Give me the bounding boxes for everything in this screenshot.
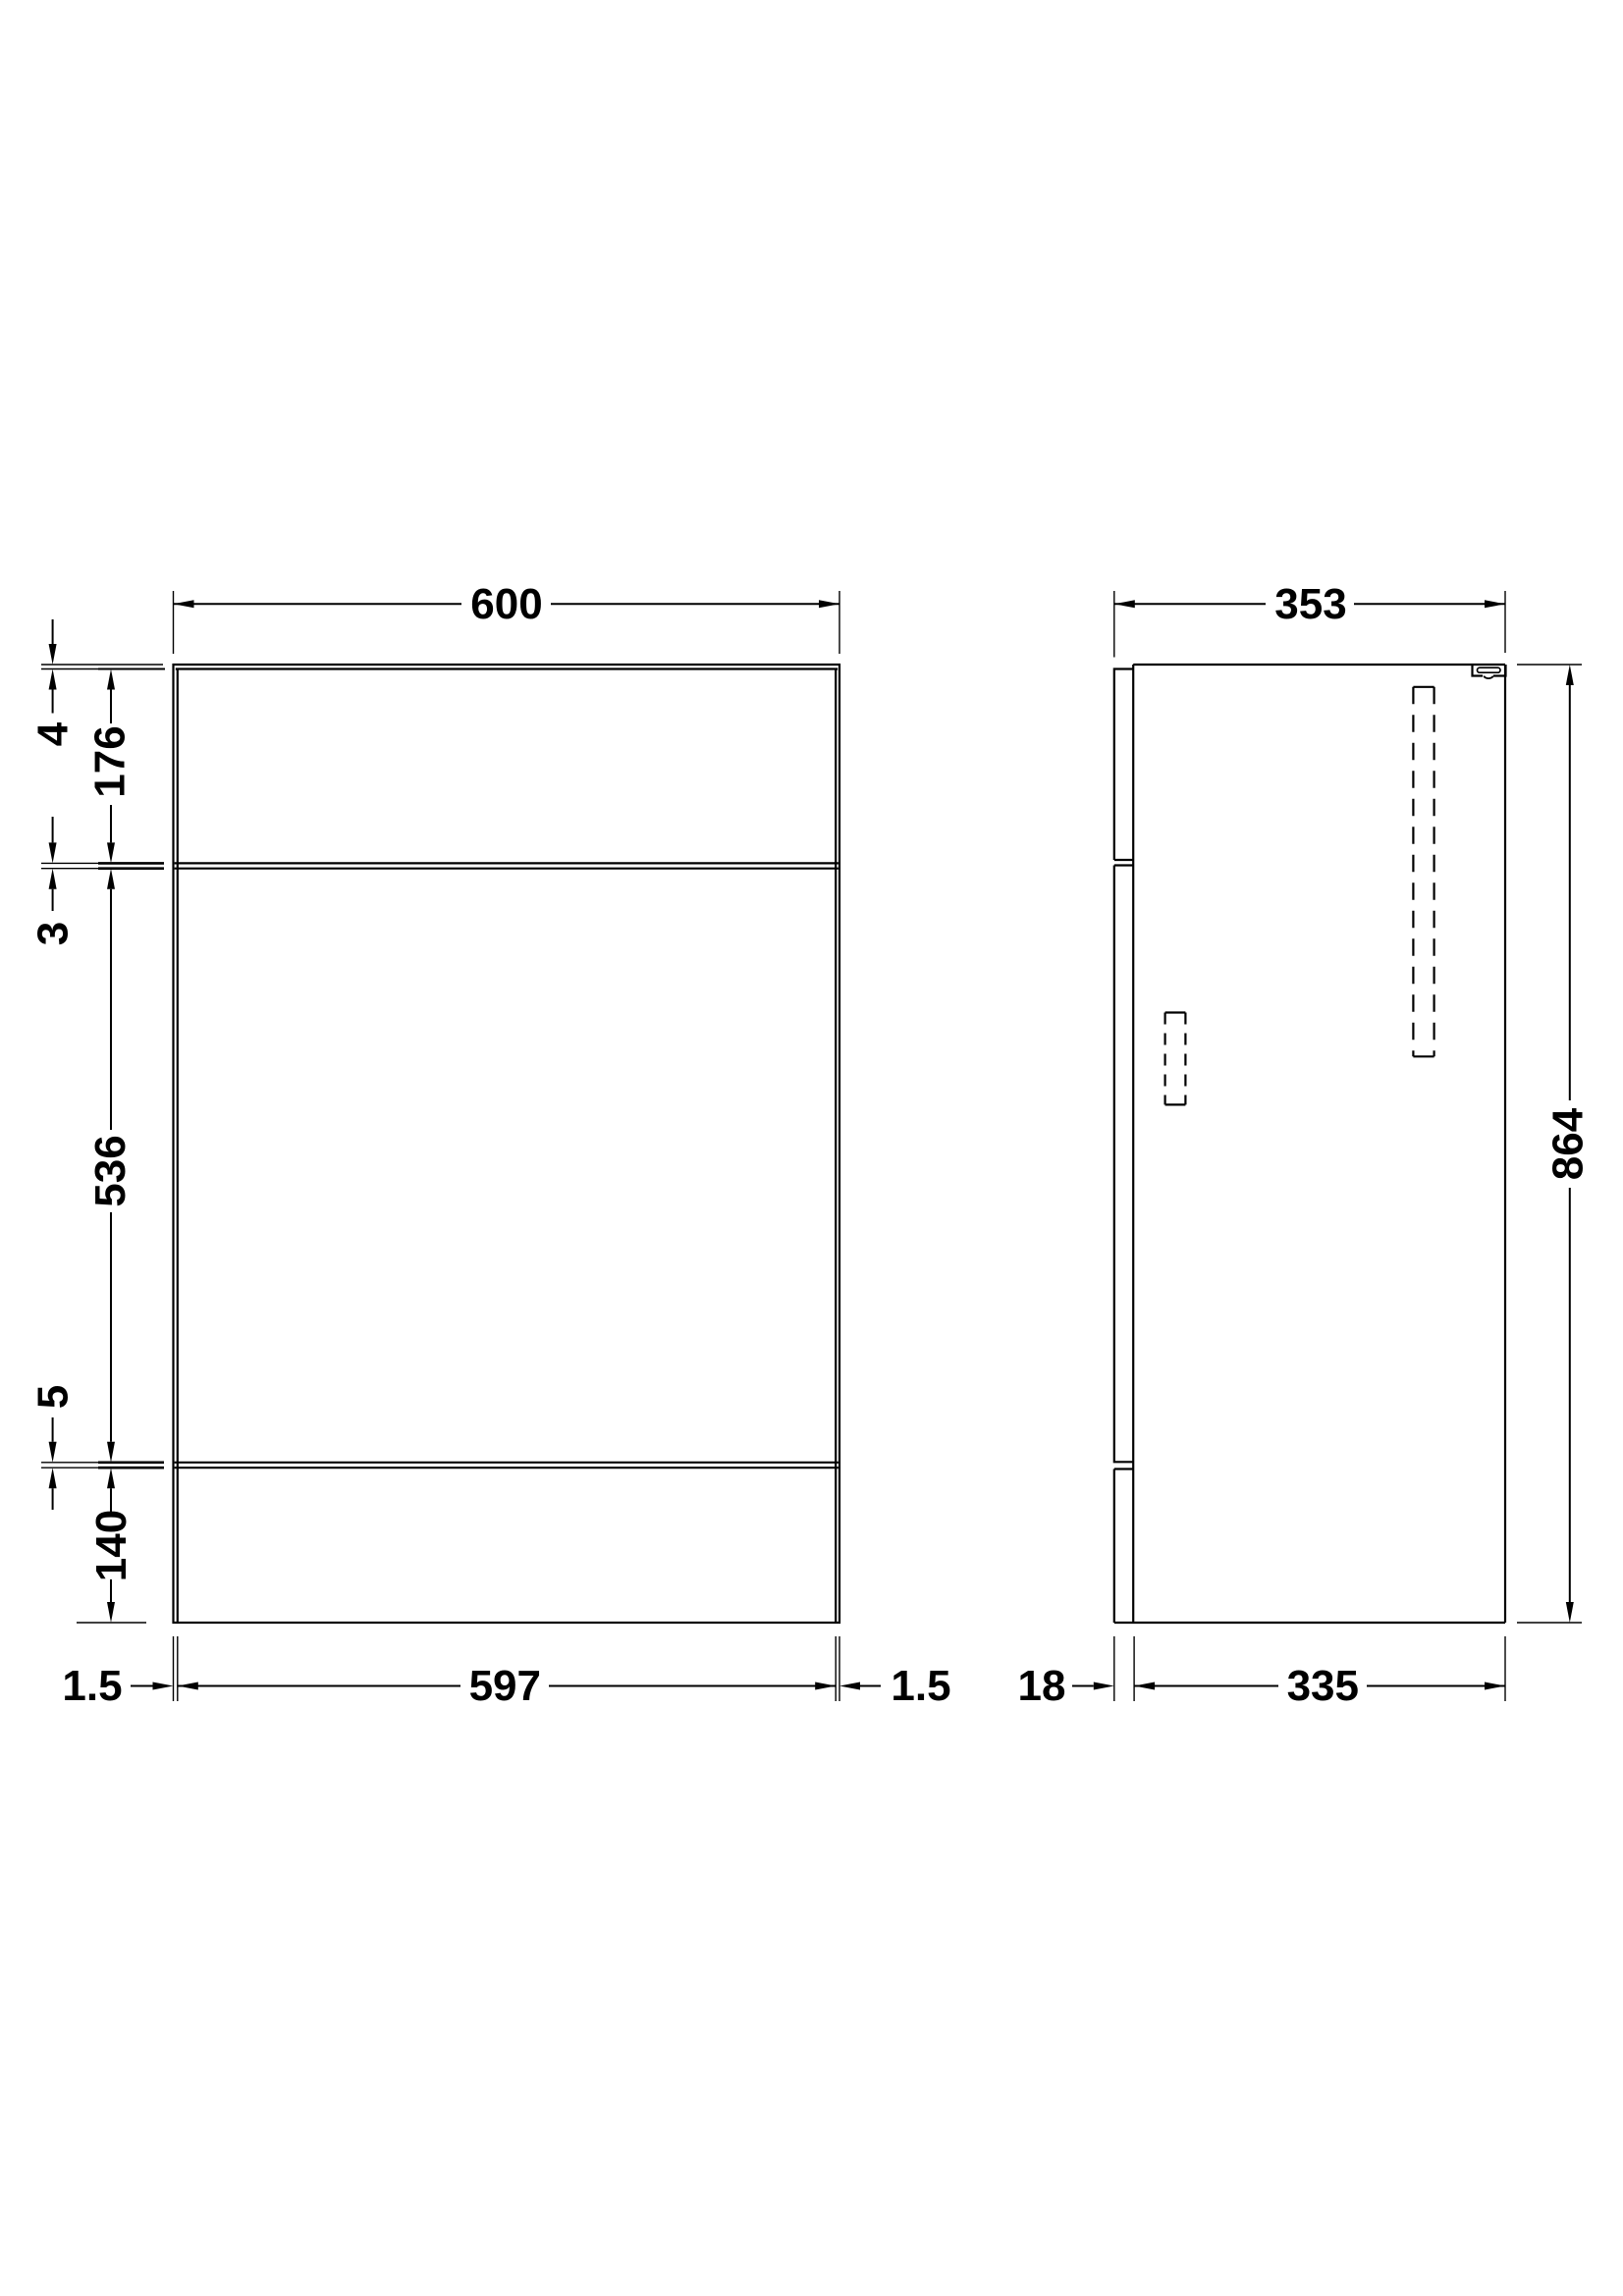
svg-text:1.5: 1.5 xyxy=(891,1662,950,1710)
svg-text:140: 140 xyxy=(87,1510,135,1581)
svg-text:353: 353 xyxy=(1274,580,1346,628)
svg-text:597: 597 xyxy=(469,1662,541,1710)
svg-text:1.5: 1.5 xyxy=(62,1662,122,1710)
svg-text:600: 600 xyxy=(470,580,542,628)
svg-text:4: 4 xyxy=(29,721,78,746)
svg-text:3: 3 xyxy=(29,922,78,945)
svg-text:864: 864 xyxy=(1544,1107,1593,1180)
svg-text:335: 335 xyxy=(1287,1662,1359,1710)
svg-text:18: 18 xyxy=(1018,1662,1066,1710)
svg-text:176: 176 xyxy=(86,725,135,797)
svg-text:5: 5 xyxy=(29,1385,78,1409)
svg-text:536: 536 xyxy=(86,1135,135,1206)
